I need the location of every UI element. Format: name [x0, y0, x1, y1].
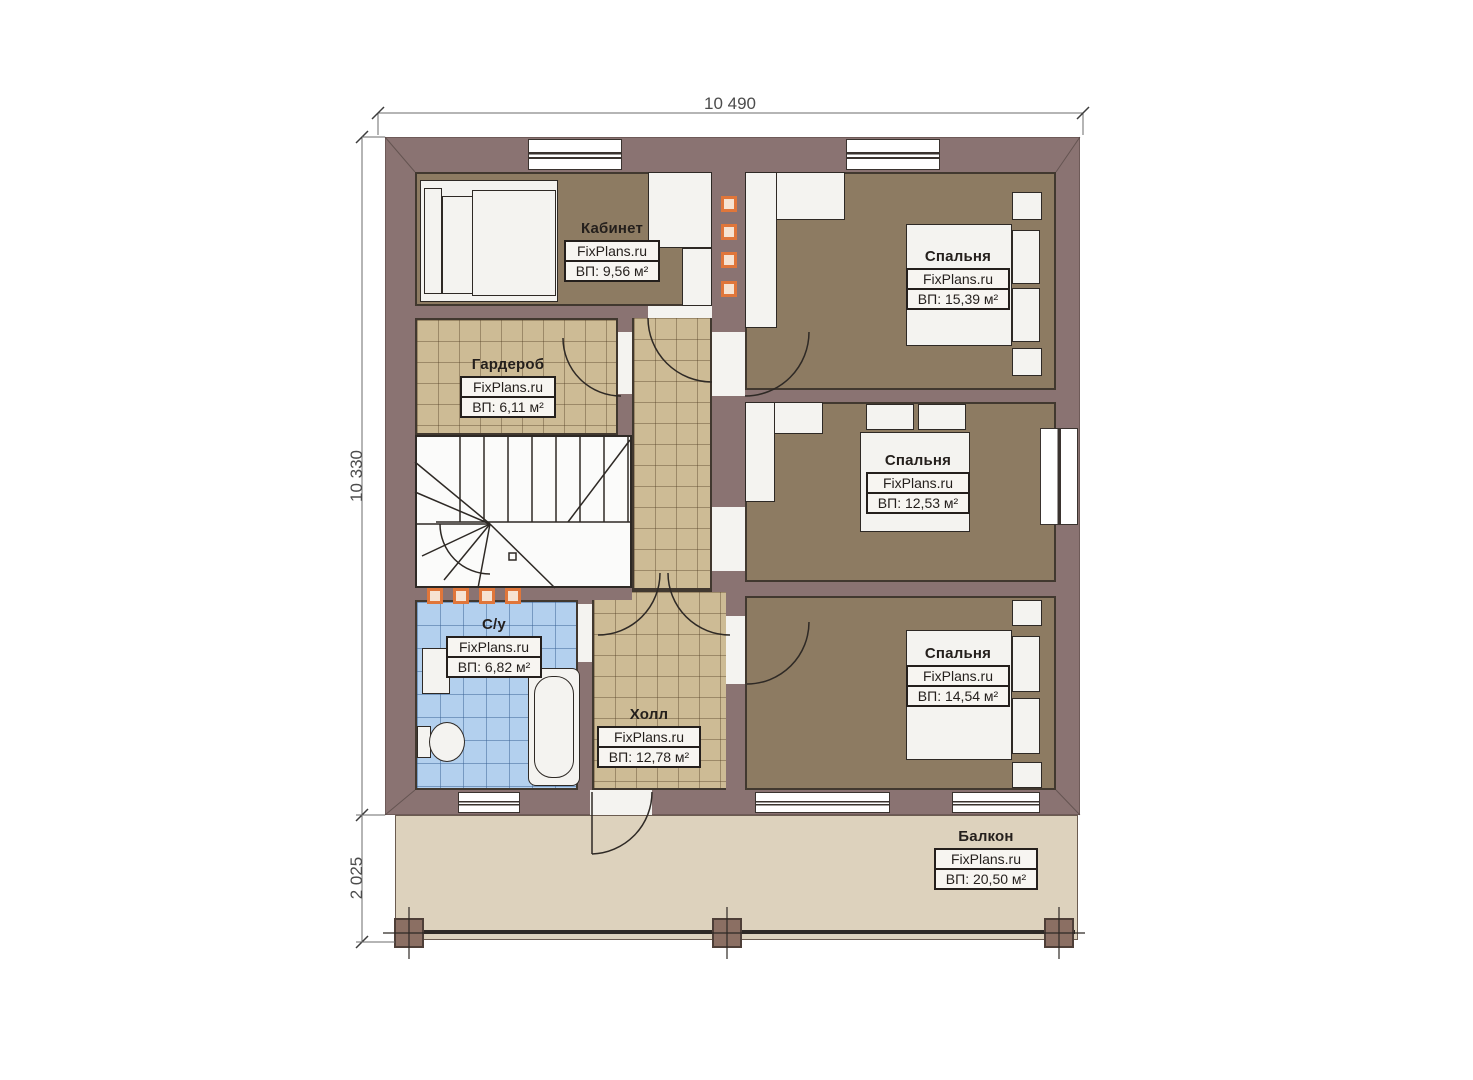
room-name: Кабинет: [547, 220, 677, 237]
vent-block: [427, 588, 443, 604]
door-gap-bathroom: [578, 604, 592, 662]
room-name: Балкон: [921, 828, 1051, 845]
room-label-garderob: Гардероб FixPlans.ru ВП: 6,11 м²: [443, 356, 573, 418]
brand-text: FixPlans.ru: [462, 378, 554, 398]
room-info-box: FixPlans.ru ВП: 6,11 м²: [460, 376, 556, 418]
area-text: ВП: 9,56 м²: [566, 262, 659, 280]
room-info-box: FixPlans.ru ВП: 9,56 м²: [564, 240, 661, 282]
window-right: [1040, 428, 1078, 525]
vent-block: [505, 588, 521, 604]
wall-bedrooms-2: [745, 582, 1056, 596]
area-text: ВП: 15,39 м²: [908, 290, 1008, 308]
room-name: С/у: [429, 616, 559, 633]
room-info-box: FixPlans.ru ВП: 20,50 м²: [934, 848, 1038, 890]
room-name: Гардероб: [443, 356, 573, 373]
floor-corridor: [632, 318, 712, 590]
room-label-sanuzel: С/у FixPlans.ru ВП: 6,82 м²: [429, 616, 559, 678]
window-top-2: [846, 139, 940, 170]
floorplan-canvas: 10 490 10 330 2 025 Кабинет FixPlans.ru …: [0, 0, 1473, 1080]
balcony-post: [712, 918, 742, 948]
closet: [745, 172, 777, 328]
area-text: ВП: 6,11 м²: [462, 398, 554, 416]
dimension-balcony-label: 2 025: [347, 833, 367, 923]
window-top-1: [528, 139, 622, 170]
room-name: Спальня: [853, 452, 983, 469]
door-gap-bedroom-mid: [712, 507, 745, 571]
pillow: [918, 404, 966, 430]
room-info-box: FixPlans.ru ВП: 12,53 м²: [866, 472, 970, 514]
sofa-armrest: [424, 188, 442, 294]
room-name: Спальня: [893, 248, 1023, 265]
area-text: ВП: 12,53 м²: [868, 494, 968, 512]
room-info-box: FixPlans.ru ВП: 12,78 м²: [597, 726, 701, 768]
dimension-height-label: 10 330: [347, 431, 367, 521]
pillow: [866, 404, 914, 430]
room-label-kabinet: Кабинет FixPlans.ru ВП: 9,56 м²: [547, 220, 677, 282]
closet: [745, 402, 775, 502]
brand-text: FixPlans.ru: [566, 242, 659, 262]
vent-block: [453, 588, 469, 604]
brand-text: FixPlans.ru: [936, 850, 1036, 870]
toilet-bowl: [429, 722, 465, 762]
vent-block: [721, 196, 737, 212]
vent-block: [721, 281, 737, 297]
nightstand: [1012, 192, 1042, 220]
brand-text: FixPlans.ru: [448, 638, 541, 658]
wall-bedrooms-1: [745, 390, 1056, 402]
area-text: ВП: 6,82 м²: [448, 658, 541, 676]
balcony-post: [1044, 918, 1074, 948]
brand-text: FixPlans.ru: [868, 474, 968, 494]
door-gap-bedroom-bottom: [726, 616, 745, 684]
nightstand: [1012, 600, 1042, 626]
floor-stairs: [415, 435, 632, 588]
room-info-box: FixPlans.ru ВП: 14,54 м²: [906, 665, 1010, 707]
dimension-width-label: 10 490: [685, 94, 775, 114]
window-bottom-3: [952, 792, 1040, 813]
room-label-balcony: Балкон FixPlans.ru ВП: 20,50 м²: [921, 828, 1051, 890]
room-info-box: FixPlans.ru ВП: 15,39 м²: [906, 268, 1010, 310]
nightstand: [1012, 762, 1042, 788]
door-gap-garderob: [618, 332, 632, 394]
area-text: ВП: 12,78 м²: [599, 748, 699, 766]
room-label-bedroom-mid: Спальня FixPlans.ru ВП: 12,53 м²: [853, 452, 983, 514]
room-name: Холл: [584, 706, 714, 723]
vent-block: [721, 252, 737, 268]
door-gap-balcony: [590, 790, 652, 815]
room-label-hall: Холл FixPlans.ru ВП: 12,78 м²: [584, 706, 714, 768]
door-gap-kabinet: [648, 306, 712, 318]
brand-text: FixPlans.ru: [908, 270, 1008, 290]
bathtub-inner: [534, 676, 574, 778]
vent-block: [721, 224, 737, 240]
room-info-box: FixPlans.ru ВП: 6,82 м²: [446, 636, 543, 678]
sofa-cushion: [472, 190, 556, 296]
room-label-bedroom-bottom: Спальня FixPlans.ru ВП: 14,54 м²: [893, 645, 1023, 707]
closet: [682, 248, 712, 306]
brand-text: FixPlans.ru: [599, 728, 699, 748]
balcony-post: [394, 918, 424, 948]
vent-block: [479, 588, 495, 604]
area-text: ВП: 14,54 м²: [908, 687, 1008, 705]
brand-text: FixPlans.ru: [908, 667, 1008, 687]
room-name: Спальня: [893, 645, 1023, 662]
window-bottom-2: [755, 792, 890, 813]
wall-stairs-bath: [415, 588, 632, 600]
door-gap-bedroom-top: [712, 332, 745, 396]
nightstand: [1012, 348, 1042, 376]
area-text: ВП: 20,50 м²: [936, 870, 1036, 888]
room-label-bedroom-top: Спальня FixPlans.ru ВП: 15,39 м²: [893, 248, 1023, 310]
window-bottom-1: [458, 792, 520, 813]
